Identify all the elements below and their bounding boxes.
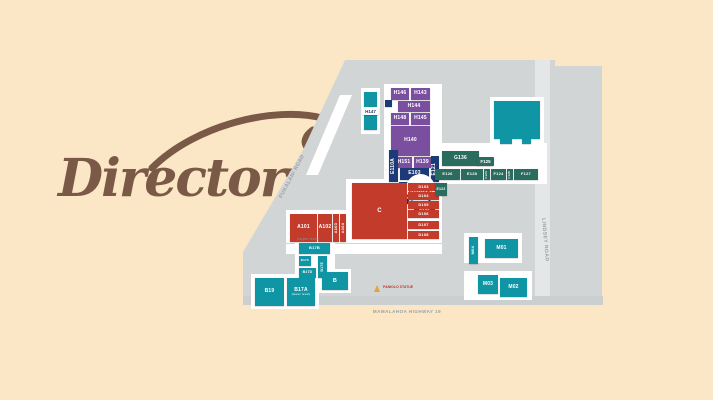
statue-label: PANIOLO STATUE [383, 285, 413, 289]
unit-b19-label: B19 [265, 289, 275, 295]
unit-f124[interactable]: F124 [491, 169, 506, 180]
mamalahoa-highway-label: MAMALAHOA HIGHWAY 19 [373, 309, 441, 314]
unit-h143[interactable]: H143 [411, 88, 430, 100]
unit-b17b[interactable]: B17B [299, 243, 330, 254]
unit-h143-label: H143 [414, 91, 427, 97]
unit-d106-label: D106 [418, 212, 428, 216]
unit-b17a[interactable]: B17A (lower level) [287, 278, 315, 306]
statue-icon [374, 285, 380, 292]
unit-d105[interactable]: D105 [408, 201, 439, 209]
unit-b[interactable]: B [322, 272, 348, 290]
unit-b17c-label: B17C [301, 259, 309, 262]
unit-f124-label: F124 [494, 172, 504, 176]
unit-a104-label: A104 [341, 223, 345, 233]
unit-small-navy-block[interactable] [385, 100, 392, 107]
unit-b17c[interactable]: B17C [299, 256, 311, 266]
unit-h144[interactable]: H144 [398, 101, 430, 112]
unit-d108[interactable]: D108 [408, 231, 439, 239]
unit-northeast-tab-2 [522, 139, 531, 144]
unit-m03[interactable]: M03 [478, 275, 498, 294]
unit-f127-label: F127 [521, 172, 531, 176]
unit-northeast-building[interactable] [494, 101, 540, 139]
unit-c-label: C [377, 208, 382, 215]
unit-b17e-label: B17E [321, 262, 325, 272]
east-parcel [552, 66, 602, 296]
unit-f127[interactable]: F127 [514, 169, 538, 180]
unit-a102[interactable]: A102 [318, 214, 332, 242]
unit-m04-label: M04 [471, 246, 475, 254]
unit-a103[interactable]: A103 [333, 214, 339, 242]
unit-d107-label: D107 [418, 223, 428, 227]
unit-b17d-label: B17D [303, 271, 313, 275]
unit-h146[interactable]: H146 [391, 88, 409, 100]
unit-h145[interactable]: H145 [411, 113, 430, 125]
unit-h151[interactable]: H151 [396, 157, 412, 168]
unit-m02[interactable]: M02 [500, 278, 527, 297]
unit-f125-callout[interactable]: F125 [477, 157, 494, 166]
unit-f125-label: F125 [480, 159, 490, 164]
unit-e128[interactable]: E128 [461, 169, 483, 180]
unit-d105-label: D105 [418, 203, 428, 207]
unit-b17d[interactable]: B17D [299, 268, 316, 278]
unit-h148-label: H148 [394, 116, 407, 122]
unit-m02-label: M02 [508, 285, 518, 291]
unit-d106[interactable]: D106 [408, 210, 439, 218]
unit-e110a-label: E110A [391, 158, 397, 174]
unit-e122-label: E122 [437, 188, 446, 192]
unit-a101-label: A101 [297, 225, 310, 231]
unit-northeast-tab-1 [500, 139, 512, 144]
directory-page: Directory PUKALANI ROAD LINDSEY ROAD MAM… [0, 0, 713, 400]
unit-e110a[interactable]: E110A [389, 150, 398, 182]
unit-h139[interactable]: H139 [414, 157, 431, 168]
unit-m01-label: M01 [496, 246, 506, 252]
unit-f123-label: F123 [485, 171, 488, 179]
unit-m03-label: M03 [483, 282, 493, 288]
unit-g136-label: G136 [454, 156, 467, 162]
unit-d103-label: D103 [418, 185, 428, 189]
unit-f126-label: F126 [508, 171, 511, 179]
unit-f126[interactable]: F126 [507, 169, 513, 180]
unit-a103-label: A103 [334, 223, 338, 233]
unit-f123[interactable]: F123 [484, 169, 490, 180]
unit-m01[interactable]: M01 [485, 239, 518, 258]
unit-a102-label: A102 [319, 225, 332, 231]
unit-e126-label: E126 [442, 172, 452, 176]
unit-b19[interactable]: B19 [255, 278, 284, 306]
unit-e122[interactable]: E122 [435, 183, 447, 196]
unit-e128-label: E128 [467, 172, 477, 176]
unit-h147-callout[interactable]: H147 [362, 107, 379, 115]
unit-d104-label: D104 [418, 194, 428, 198]
unit-h148[interactable]: H148 [391, 113, 409, 125]
unit-d107[interactable]: D107 [408, 221, 439, 229]
unit-c[interactable]: C [352, 183, 407, 239]
unit-b17b-label: B17B [309, 246, 320, 250]
unit-h147-label: H147 [365, 109, 376, 114]
unit-h146-label: H146 [394, 91, 407, 97]
unit-b-label: B [333, 278, 337, 284]
unit-d108-label: D108 [418, 233, 428, 237]
unit-h151-label: H151 [398, 160, 411, 166]
unit-e126[interactable]: E126 [435, 169, 460, 180]
unit-b17a-level-note: (lower level) [292, 293, 311, 296]
unit-m04[interactable]: M04 [469, 237, 478, 264]
unit-h139-label: H139 [416, 160, 429, 166]
unit-h144-label: H144 [408, 104, 421, 110]
upper-level-note: (upper level) [297, 236, 319, 241]
unit-h145-label: H145 [414, 116, 427, 122]
unit-h140-label: H140 [404, 138, 417, 144]
unit-g136[interactable]: G136 [442, 151, 479, 166]
unit-a104[interactable]: A104 [340, 214, 346, 242]
